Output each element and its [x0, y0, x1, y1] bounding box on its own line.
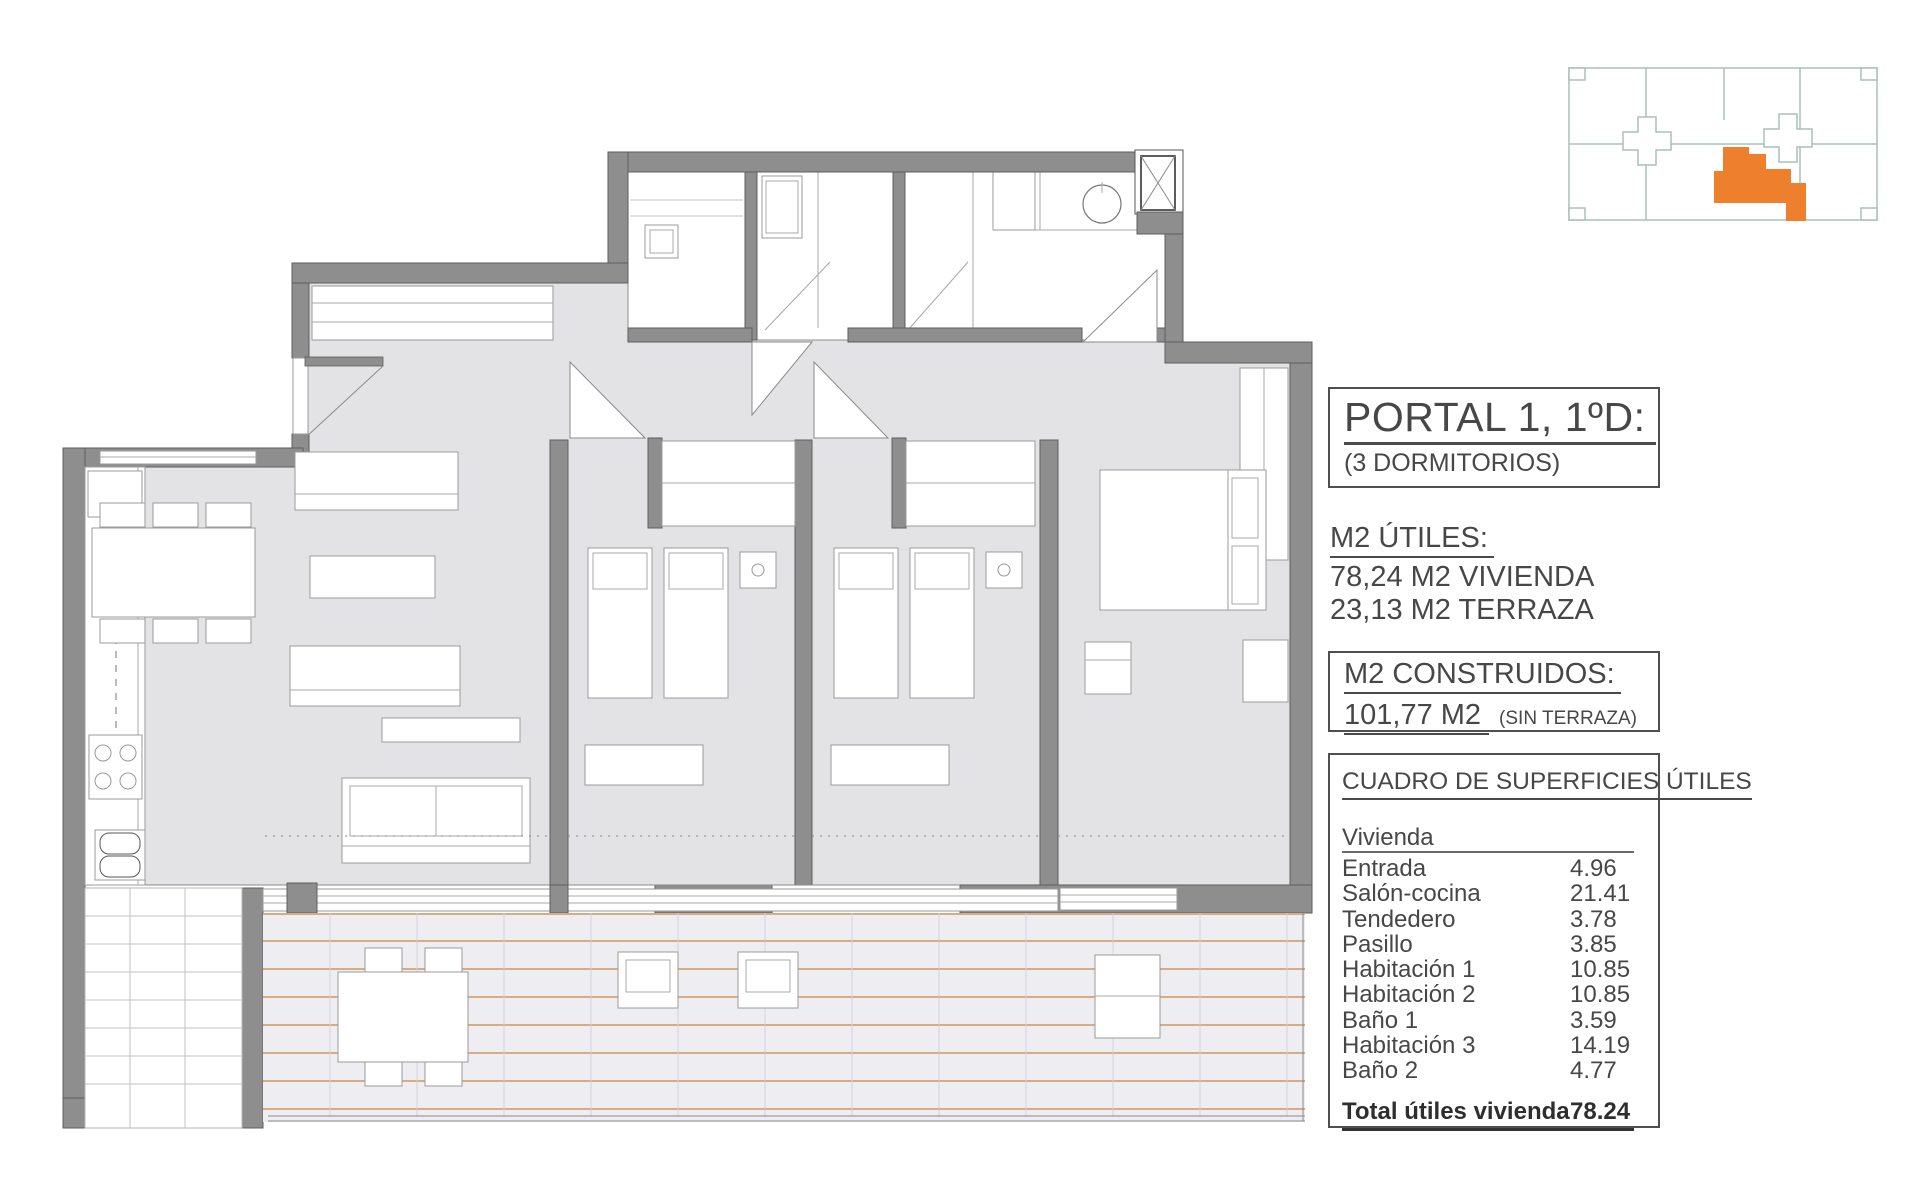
- dining-table: [92, 503, 255, 643]
- m2-terraza-line: 23,13 M2 TERRAZA: [1330, 594, 1662, 627]
- kitchen-sink-icon: [95, 830, 145, 880]
- sin-terraza-note: (SIN TERRAZA): [1499, 708, 1637, 729]
- table-row: Habitación 3 14.19: [1342, 1033, 1634, 1058]
- m2-construidos-heading: M2 CONSTRUIDOS:: [1344, 658, 1621, 694]
- surfaces-group-label: Vivienda: [1342, 825, 1634, 853]
- m2-construidos-box: M2 CONSTRUIDOS: 101,77 M2(SIN TERRAZA): [1328, 651, 1660, 732]
- m2-construidos-value: 101,77 M2: [1344, 699, 1489, 735]
- total-row: Total útiles vivienda 78.24: [1342, 1099, 1634, 1131]
- elevator-icon: [1135, 150, 1183, 234]
- surfaces-table-heading: CUADRO DE SUPERFICIES ÚTILES: [1342, 768, 1752, 800]
- bedrooms-subtitle: (3 DORMITORIOS): [1344, 449, 1644, 478]
- portal-title-box: PORTAL 1, 1ºD: (3 DORMITORIOS): [1328, 387, 1660, 488]
- table-row: Baño 2 4.77: [1342, 1058, 1634, 1083]
- m2-utiles-block: M2 ÚTILES: 78,24 M2 VIVIENDA 23,13 M2 TE…: [1330, 522, 1662, 627]
- bed: [1100, 470, 1266, 610]
- table-row: Tendedero 3.78: [1342, 907, 1634, 932]
- washer-icon: [762, 176, 802, 238]
- cooktop-icon: [89, 735, 142, 799]
- m2-vivienda-line: 78,24 M2 VIVIENDA: [1330, 561, 1662, 594]
- table-row: Entrada 4.96: [1342, 856, 1634, 881]
- table-row: Habitación 1 10.85: [1342, 957, 1634, 982]
- table-row: Pasillo 3.85: [1342, 932, 1634, 957]
- table-row: Salón-cocina 21.41: [1342, 881, 1634, 906]
- m2-utiles-heading: M2 ÚTILES:: [1330, 522, 1494, 558]
- side-terrace: [85, 888, 242, 1128]
- table-row: Habitación 2 10.85: [1342, 982, 1634, 1007]
- page-title: PORTAL 1, 1ºD:: [1344, 394, 1656, 445]
- surfaces-table-box: CUADRO DE SUPERFICIES ÚTILES Vivienda En…: [1328, 753, 1660, 1128]
- table-row: Baño 1 3.59: [1342, 1008, 1634, 1033]
- terrace: [263, 913, 1305, 1122]
- kitchen-sink-icon: [645, 225, 678, 258]
- key-plan: [1569, 68, 1877, 221]
- sofa: [342, 778, 530, 863]
